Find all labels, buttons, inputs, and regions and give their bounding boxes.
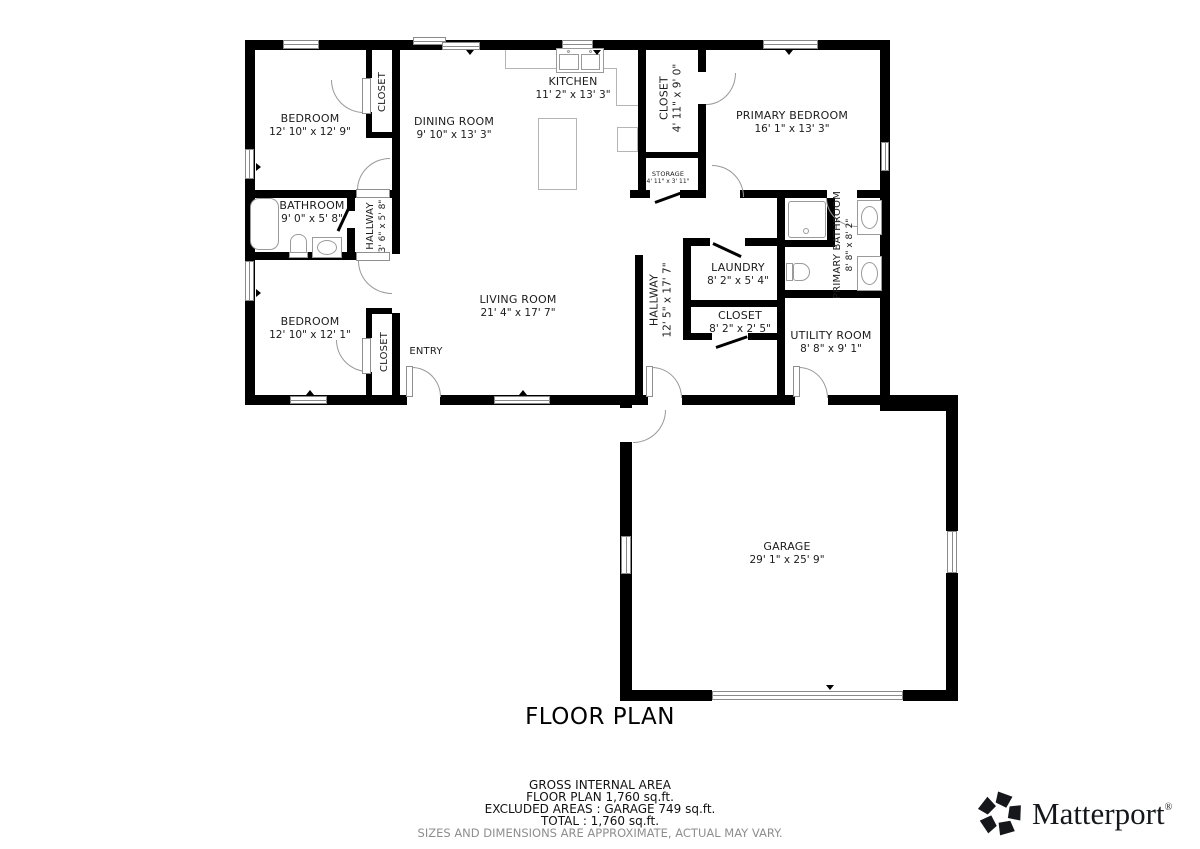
room-dims: 29' 1" x 25' 9" — [749, 554, 824, 567]
room-dims: 12' 10" x 12' 1" — [269, 329, 351, 342]
room-name: KITCHEN — [535, 75, 610, 89]
counter-edge — [505, 50, 506, 69]
door-arc — [633, 410, 666, 443]
room-name: HALLWAY — [648, 262, 662, 337]
room-dims: 4' 11" x 3' 11" — [647, 178, 690, 186]
kitchen-sink-basin — [559, 54, 579, 70]
wall — [630, 190, 650, 198]
kitchen-counter — [617, 127, 638, 152]
room-dims: 11' 2" x 13' 3" — [535, 89, 610, 102]
wall — [691, 238, 710, 246]
wall — [683, 333, 712, 340]
wall — [366, 46, 372, 78]
window — [494, 396, 550, 404]
room-name: CLOSET — [709, 309, 771, 323]
room-label-closet-1: CLOSET — [377, 72, 390, 112]
room-name: CLOSET — [379, 332, 392, 372]
toilet — [289, 252, 308, 258]
window — [763, 40, 818, 49]
room-label-laundry: LAUNDRY 8' 2" x 5' 4" — [707, 261, 769, 288]
room-name: CLOSET — [377, 72, 390, 112]
wall — [392, 313, 400, 395]
room-label-bedroom-2: BEDROOM 12' 10" x 12' 1" — [269, 315, 351, 342]
room-label-dining-room: DINING ROOM 9' 10" x 13' 3" — [414, 115, 494, 142]
room-name: LAUNDRY — [707, 261, 769, 275]
measure-tick — [466, 50, 474, 55]
wall — [366, 372, 372, 398]
door-arc — [357, 158, 390, 190]
door-arc — [358, 261, 392, 294]
toilet — [786, 263, 793, 281]
room-label-living-room: LIVING ROOM 21' 4" x 17' 7" — [479, 293, 556, 320]
wall — [683, 238, 691, 340]
wall — [698, 40, 706, 72]
wall — [620, 690, 712, 701]
room-label-primary-bathroom: PRIMARY BATHROOM 8' 8" x 8' 2" — [832, 191, 856, 299]
room-label-primary-bedroom: PRIMARY BEDROOM 16' 1" x 13' 3" — [736, 109, 848, 136]
window — [881, 142, 889, 171]
room-dims: 8' 8" x 8' 2" — [845, 191, 856, 299]
counter-edge — [616, 68, 617, 106]
wall — [638, 48, 646, 192]
vanity-sink — [861, 206, 878, 229]
bathtub — [250, 198, 279, 250]
wall — [880, 395, 958, 411]
wall — [392, 198, 400, 254]
matterport-logo-icon — [976, 789, 1024, 839]
room-label-closet-top: CLOSET 4' 11" x 9' 0" — [658, 64, 685, 132]
room-label-closet-hall: CLOSET 8' 2" x 2' 5" — [709, 309, 771, 336]
page-title: FLOOR PLAN — [525, 704, 675, 730]
bathroom-sink — [317, 240, 337, 255]
room-name: GARAGE — [749, 540, 824, 554]
room-name: BATHROOM — [279, 199, 344, 213]
room-label-bedroom-1: BEDROOM 12' 10" x 12' 9" — [269, 112, 351, 139]
measure-tick — [826, 685, 834, 690]
matterport-wordmark: Matterport® — [1032, 796, 1172, 832]
measure-tick — [256, 163, 261, 171]
window — [283, 40, 319, 49]
window — [290, 396, 327, 404]
room-label-utility-room: UTILITY ROOM 8' 8" x 9' 1" — [790, 329, 871, 356]
kitchen-island — [538, 118, 577, 190]
door-leaf — [406, 366, 413, 397]
wall — [785, 240, 835, 247]
room-dims: 8' 8" x 9' 1" — [790, 343, 871, 356]
window — [442, 42, 480, 50]
measure-tick — [306, 390, 314, 395]
door-leaf — [712, 242, 741, 258]
door-leaf — [362, 78, 371, 114]
wall — [903, 690, 958, 701]
room-name: PRIMARY BATHROOM — [832, 191, 845, 299]
matterport-logo: Matterport® — [976, 789, 1172, 839]
room-label-kitchen: KITCHEN 11' 2" x 13' 3" — [535, 75, 610, 102]
door-arc — [712, 165, 744, 197]
measure-tick — [785, 50, 793, 55]
room-dims: 16' 1" x 13' 3" — [736, 123, 848, 136]
wall — [392, 40, 400, 198]
wall — [245, 190, 358, 198]
room-dims: 9' 10" x 13' 3" — [414, 129, 494, 142]
wall — [777, 195, 785, 400]
room-label-closet-2: CLOSET — [379, 332, 392, 372]
wall — [698, 104, 706, 192]
window — [947, 531, 957, 573]
door-leaf — [356, 189, 390, 198]
faucet — [589, 50, 592, 53]
floor-plan-page: BEDROOM 12' 10" x 12' 9" CLOSET DINING R… — [0, 0, 1200, 849]
wall — [857, 190, 890, 198]
measure-tick — [519, 390, 527, 395]
room-label-hallway-small: HALLWAY 3' 6" x 5' 8" — [365, 200, 389, 253]
measure-tick — [593, 50, 601, 55]
wall — [638, 152, 706, 158]
garage-door — [712, 691, 903, 700]
door-leaf — [356, 252, 390, 261]
door-leaf — [646, 366, 653, 397]
toilet — [290, 234, 307, 254]
room-name: BEDROOM — [269, 112, 351, 126]
room-dims: 8' 2" x 2' 5" — [709, 323, 771, 336]
door-arc — [799, 367, 828, 398]
window — [245, 149, 254, 179]
room-dims: 12' 5" x 17' 7" — [661, 262, 674, 337]
room-label-storage: STORAGE 4' 11" x 3' 11" — [647, 170, 690, 186]
room-name: HALLWAY — [365, 200, 378, 253]
door-leaf — [716, 335, 748, 349]
room-dims: 3' 6" x 5' 8" — [378, 200, 389, 253]
measure-tick — [256, 289, 261, 297]
kitchen-sink-basin — [581, 54, 600, 70]
window — [621, 536, 631, 574]
registered-mark: ® — [1165, 802, 1173, 813]
door-arc — [706, 73, 736, 105]
toilet — [793, 263, 810, 281]
door-arc — [652, 367, 682, 398]
room-dims: 21' 4" x 17' 7" — [479, 307, 556, 320]
room-name: CLOSET — [658, 64, 672, 132]
door-arc — [331, 80, 364, 113]
door-leaf — [362, 338, 371, 374]
wall — [946, 573, 958, 700]
door-arc — [412, 367, 441, 397]
room-dims: 12' 10" x 12' 9" — [269, 126, 351, 139]
wall — [620, 395, 632, 408]
vanity-sink — [861, 262, 878, 285]
door-leaf — [793, 366, 800, 397]
counter-edge — [616, 105, 638, 106]
room-name: ENTRY — [409, 346, 442, 359]
window — [245, 261, 254, 301]
room-name: UTILITY ROOM — [790, 329, 871, 343]
room-name: BEDROOM — [269, 315, 351, 329]
wall — [635, 255, 643, 395]
room-label-entry: ENTRY — [409, 346, 442, 359]
faucet — [567, 50, 570, 53]
wall — [683, 300, 783, 307]
wall — [366, 308, 372, 338]
wall — [946, 411, 958, 531]
room-dims: 8' 2" x 5' 4" — [707, 275, 769, 288]
room-label-garage: GARAGE 29' 1" x 25' 9" — [749, 540, 824, 567]
room-name: DINING ROOM — [414, 115, 494, 129]
disclaimer: SIZES AND DIMENSIONS ARE APPROXIMATE, AC… — [418, 826, 783, 840]
room-label-hallway-main: HALLWAY 12' 5" x 17' 7" — [648, 262, 675, 337]
room-name: STORAGE — [647, 170, 690, 178]
room-name: PRIMARY BEDROOM — [736, 109, 848, 123]
room-dims: 4' 11" x 9' 0" — [671, 64, 684, 132]
room-dims: 9' 0" x 5' 8" — [279, 213, 344, 226]
room-name: LIVING ROOM — [479, 293, 556, 307]
shower-drain — [803, 228, 809, 234]
room-label-bathroom: BATHROOM 9' 0" x 5' 8" — [279, 199, 344, 226]
